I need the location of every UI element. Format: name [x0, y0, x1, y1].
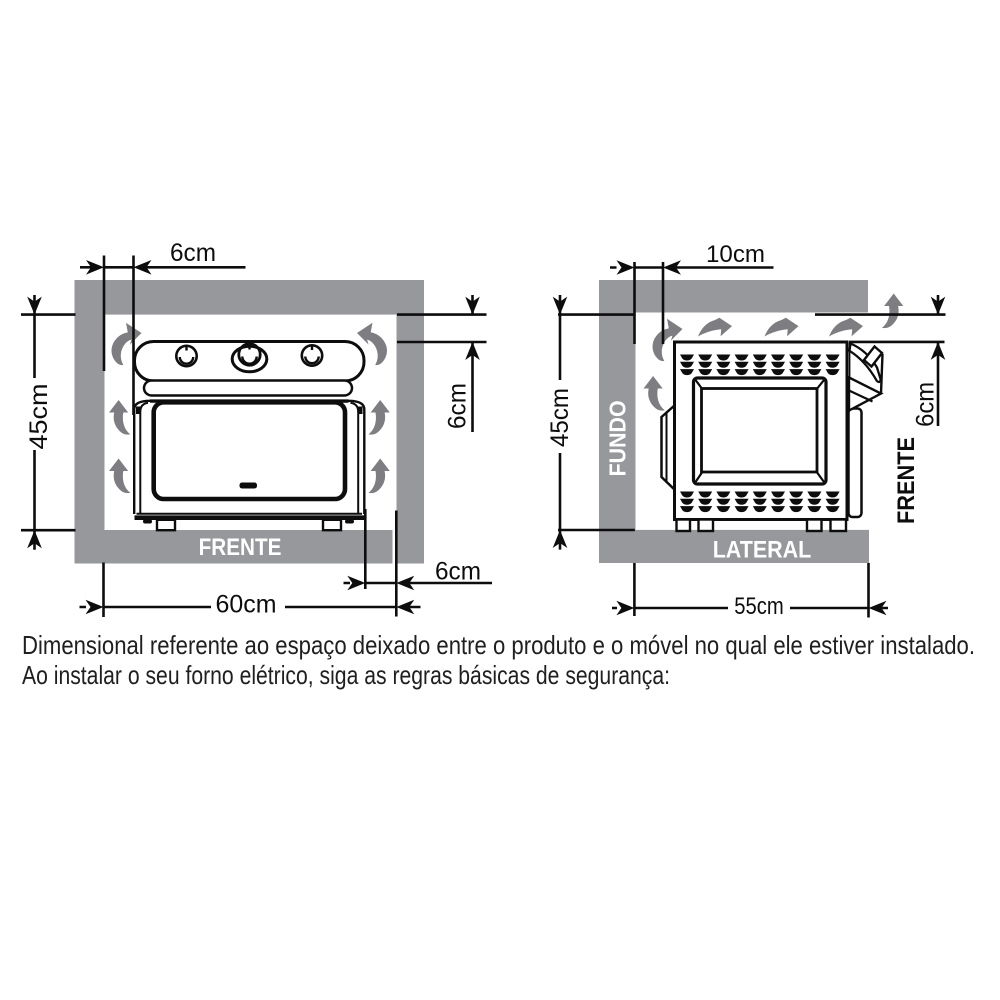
svg-text:Ao instalar o seu forno elétri: Ao instalar o seu forno elétrico, siga a…	[22, 660, 670, 690]
svg-text:FRENTE: FRENTE	[199, 534, 282, 561]
svg-text:FRENTE: FRENTE	[893, 437, 920, 524]
svg-text:45cm: 45cm	[25, 384, 53, 450]
svg-text:6cm: 6cm	[170, 239, 216, 267]
svg-text:45cm: 45cm	[546, 388, 574, 447]
svg-text:10cm: 10cm	[706, 241, 765, 268]
svg-text:6cm: 6cm	[911, 382, 939, 427]
svg-text:LATERAL: LATERAL	[713, 537, 812, 564]
svg-text:6cm: 6cm	[444, 383, 472, 429]
svg-text:55cm: 55cm	[734, 593, 784, 620]
svg-text:6cm: 6cm	[435, 558, 481, 586]
svg-text:FUNDO: FUNDO	[605, 400, 631, 476]
svg-text:Dimensional referente ao espaç: Dimensional referente ao espaço deixado …	[22, 630, 975, 660]
svg-text:60cm: 60cm	[216, 591, 277, 619]
